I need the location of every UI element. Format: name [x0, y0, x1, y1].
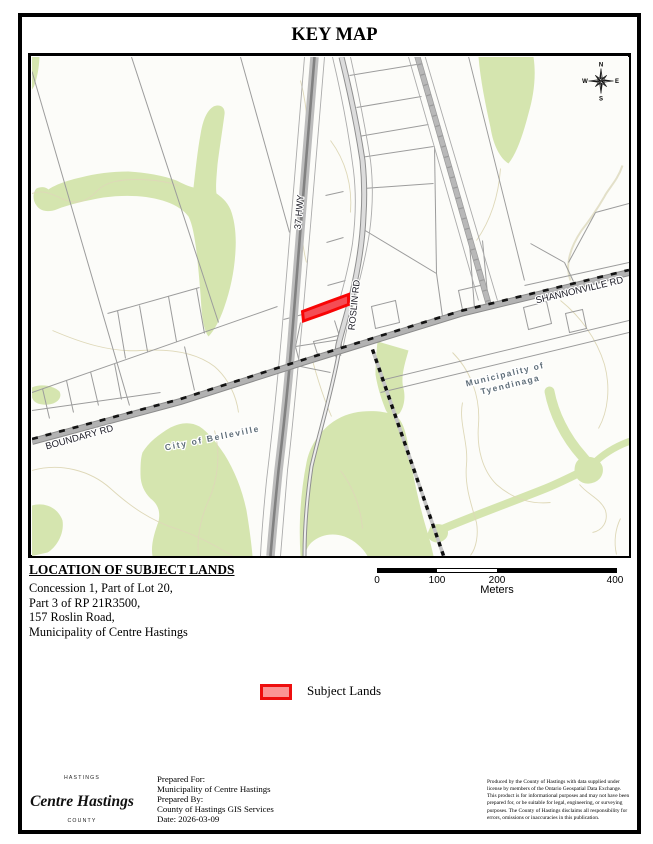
svg-text:W: W [582, 79, 588, 85]
svg-text:E: E [614, 79, 618, 85]
svg-text:S: S [598, 96, 602, 102]
svg-text:N: N [598, 62, 602, 68]
